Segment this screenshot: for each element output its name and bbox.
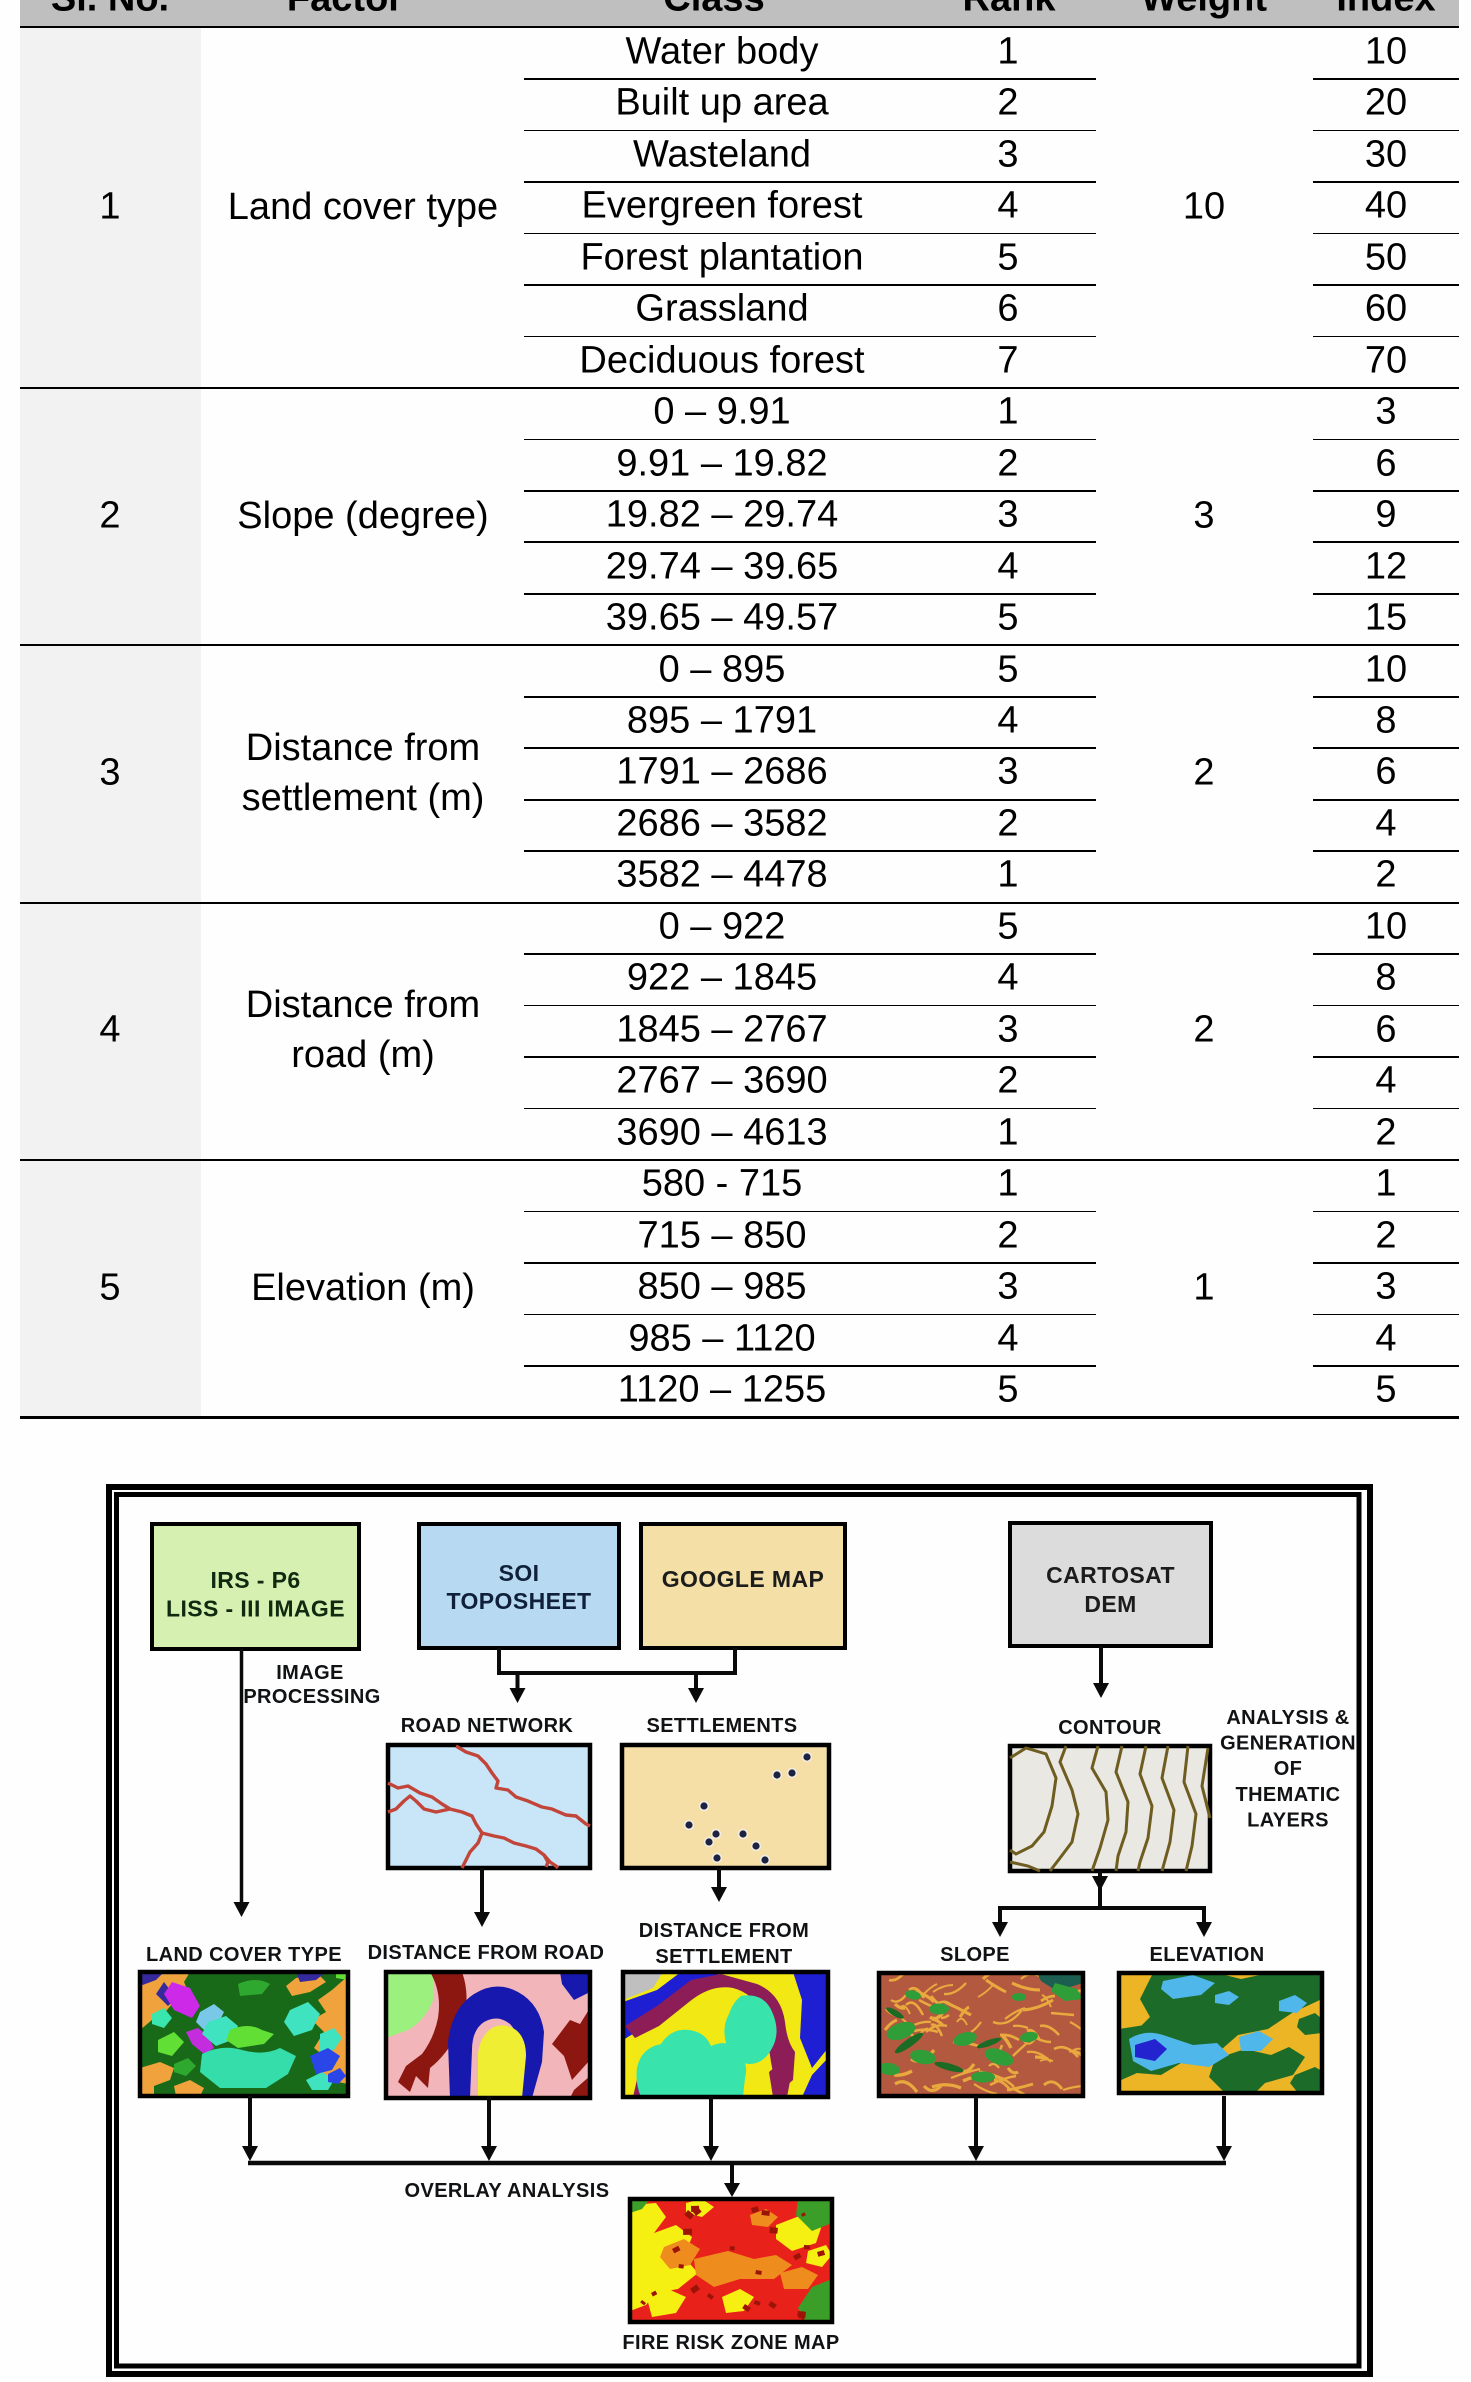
svg-text:LAND COVER TYPE: LAND COVER TYPE (146, 1944, 342, 1966)
svg-text:LAYERS: LAYERS (1247, 1809, 1329, 1831)
svg-text:ELEVATION: ELEVATION (1149, 1944, 1264, 1966)
svg-text:OVERLAY ANALYSIS: OVERLAY ANALYSIS (405, 2180, 610, 2202)
svg-text:SLOPE: SLOPE (940, 1944, 1010, 1966)
svg-text:ANALYSIS &: ANALYSIS & (1226, 1707, 1349, 1729)
svg-text:GENERATION: GENERATION (1220, 1733, 1356, 1755)
svg-text:GOOGLE MAP: GOOGLE MAP (662, 1566, 824, 1592)
svg-text:DISTANCE FROM: DISTANCE FROM (639, 1920, 809, 1942)
svg-text:LISS - III IMAGE: LISS - III IMAGE (166, 1596, 345, 1622)
svg-text:CARTOSAT: CARTOSAT (1046, 1562, 1175, 1588)
svg-text:SETTLEMENT: SETTLEMENT (655, 1946, 792, 1968)
svg-text:SETTLEMENTS: SETTLEMENTS (646, 1715, 797, 1737)
svg-text:PROCESSING: PROCESSING (243, 1686, 380, 1708)
svg-text:CONTOUR: CONTOUR (1058, 1717, 1162, 1739)
svg-text:SOI: SOI (499, 1560, 540, 1586)
svg-text:IRS - P6: IRS - P6 (210, 1567, 300, 1593)
svg-text:FIRE RISK ZONE MAP: FIRE RISK ZONE MAP (622, 2332, 839, 2354)
svg-text:DEM: DEM (1084, 1591, 1136, 1617)
svg-text:DISTANCE FROM ROAD: DISTANCE FROM ROAD (368, 1942, 605, 1964)
svg-text:IMAGE: IMAGE (276, 1662, 344, 1684)
svg-text:TOPOSHEET: TOPOSHEET (446, 1588, 591, 1614)
svg-text:ROAD NETWORK: ROAD NETWORK (401, 1715, 574, 1737)
svg-text:OF: OF (1274, 1758, 1303, 1780)
svg-text:THEMATIC: THEMATIC (1235, 1784, 1340, 1806)
